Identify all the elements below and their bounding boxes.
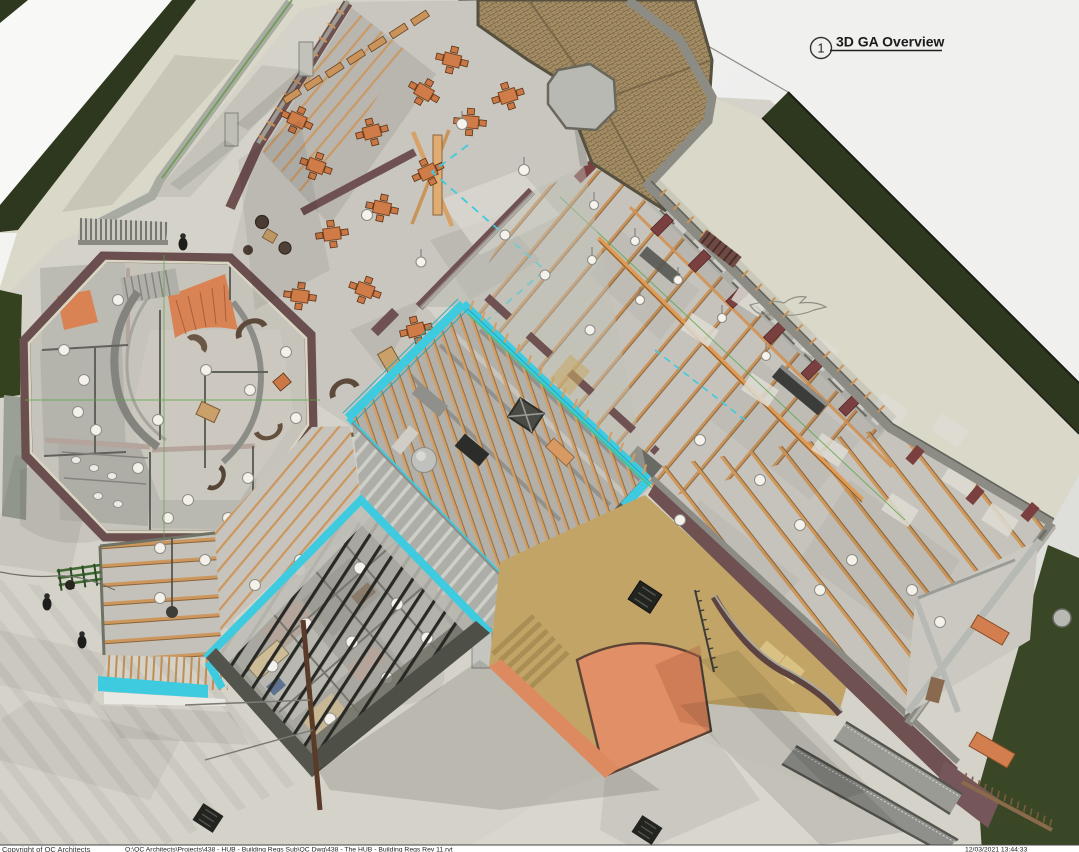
svg-text:3D GA Overview: 3D GA Overview [836,34,945,50]
svg-text:1: 1 [818,42,825,56]
svg-text:Copyright of QC Architects: Copyright of QC Architects [2,845,91,852]
svg-text:12/03/2021 13:44:33: 12/03/2021 13:44:33 [965,847,1028,852]
svg-text:Q:\QC Architects\Projects\438: Q:\QC Architects\Projects\438 - HUB - Bu… [125,847,453,852]
